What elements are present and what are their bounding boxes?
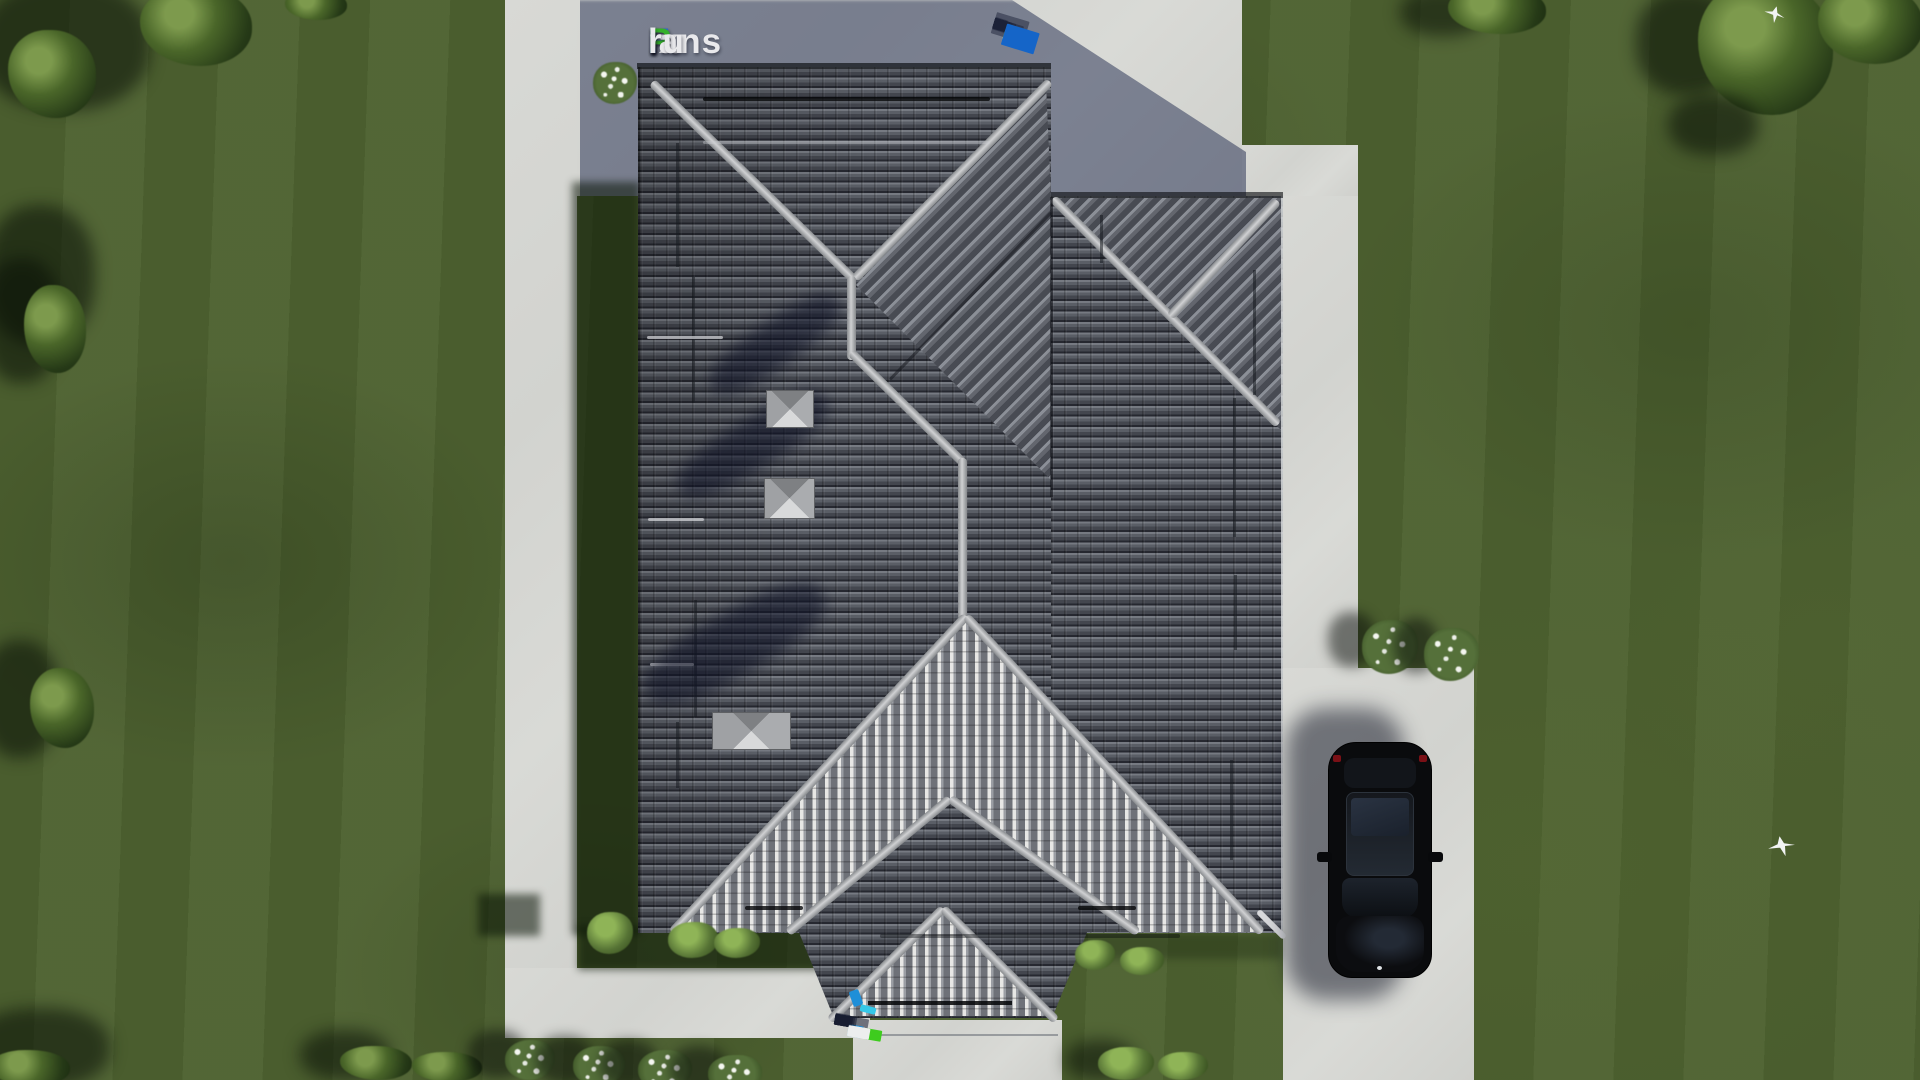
roof-vent-line [1253,270,1256,395]
wing-top-eave-line [1051,192,1283,198]
ridge-vertical-lower [958,458,967,620]
roof-vent-line [692,277,695,403]
car [1288,700,1478,1000]
chimney [764,478,815,519]
car-taillight [1333,755,1341,762]
car-windshield [1342,878,1418,918]
gutter-segment [703,97,990,101]
roof-seam-line [1050,197,1053,497]
gutter-segment [1078,906,1136,910]
aerial-house-render: FixPlans.ru [0,0,1920,1080]
roof [0,0,1920,1080]
roof-vent-line [1234,575,1237,650]
car-sunroof [1351,798,1409,836]
car-hood [1336,916,1424,972]
roof-vent-line [676,143,679,267]
porch-eave-shadow-line [868,1001,1012,1005]
gutter-segment [880,934,1180,938]
roof-vent-line [1233,398,1236,537]
flower-bush [708,1055,762,1080]
snow-guard-bar [648,518,704,521]
snow-guard-bar [703,141,990,144]
chimney-wide [712,712,791,750]
car-taillight [1419,755,1427,762]
roof-vent-line [676,722,679,788]
car-mirror [1428,852,1443,862]
tree-shadow [1668,95,1758,155]
ridge-vertical-upper [847,276,856,360]
car-mirror [1317,852,1332,862]
car-rear-window [1344,758,1416,788]
snow-guard-bar [647,336,723,339]
roof-vent-line [1230,760,1233,860]
car-front-badge [1377,966,1382,970]
logo-part-ru: ru [648,22,685,62]
roof-vent-line [1100,215,1103,263]
chimney [766,390,814,428]
gutter-segment [745,906,803,910]
